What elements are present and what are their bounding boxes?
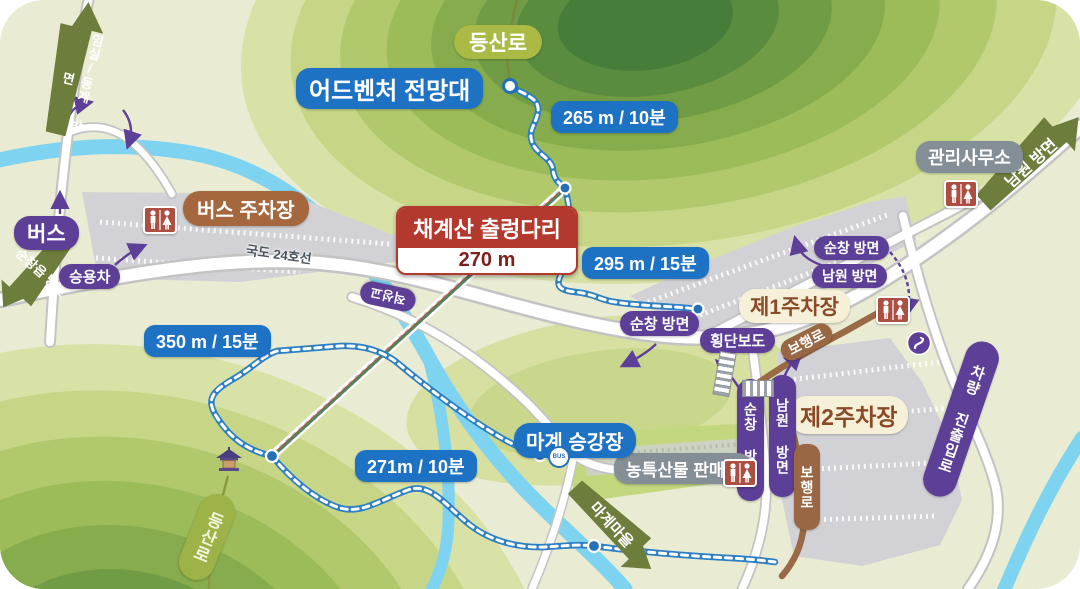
bridge-name: 채계산 출렁다리	[398, 208, 576, 248]
restroom-icon-parking2	[723, 459, 757, 487]
distance-295-badge: 295 m / 15분	[582, 247, 709, 279]
office-badge: 관리사무소	[916, 141, 1023, 173]
pavilion-icon	[214, 446, 244, 476]
adventure-observatory-badge: 어드벤처 전망대	[296, 68, 483, 109]
walkway-badge-2: 보행로	[794, 444, 820, 530]
bus-stop-icon: BUS	[548, 446, 570, 468]
trail-map: 임실/동계 방면 순창읍 방면 남원 방면 마계마을 버스 승용차 버스 주차장…	[0, 0, 1080, 589]
bus-parking-badge: 버스 주차장	[183, 191, 309, 226]
map-page: 임실/동계 방면 순창읍 방면 남원 방면 마계마을 버스 승용차 버스 주차장…	[0, 0, 1080, 589]
bridge-sign: 채계산 출렁다리 270 m	[396, 206, 578, 275]
winding-road-icon	[906, 330, 932, 356]
distance-271-badge: 271m / 10분	[355, 450, 477, 482]
bridge-length: 270 m	[398, 248, 576, 273]
parking2-badge: 제2주차장	[789, 396, 908, 434]
sunchang-direction-badge-2: 순창 방면	[814, 236, 889, 260]
map-base-art	[0, 0, 1080, 589]
distance-350-badge: 350 m / 15분	[144, 325, 271, 357]
restroom-icon-bus-parking	[143, 206, 177, 234]
bus-badge: 버스	[14, 216, 79, 250]
restroom-icon-parking1	[876, 296, 910, 324]
restroom-icon-office	[944, 180, 978, 208]
parking1-badge: 제1주차장	[739, 289, 850, 323]
namwon-direction-badge-2: 남원 방면	[812, 264, 887, 288]
bus-stop-text: BUS	[553, 454, 566, 460]
crosswalk-icon-2	[742, 380, 774, 397]
crosswalk-badge: 횡단보도	[700, 328, 775, 353]
distance-265-badge: 265 m / 10분	[551, 101, 678, 133]
sunchang-direction-badge: 순창 방면	[620, 311, 699, 336]
passenger-car-badge: 승용차	[59, 264, 120, 289]
trail-road-badge-top: 등산로	[454, 25, 542, 59]
magye-stop-badge: 마계 승강장	[514, 423, 636, 458]
